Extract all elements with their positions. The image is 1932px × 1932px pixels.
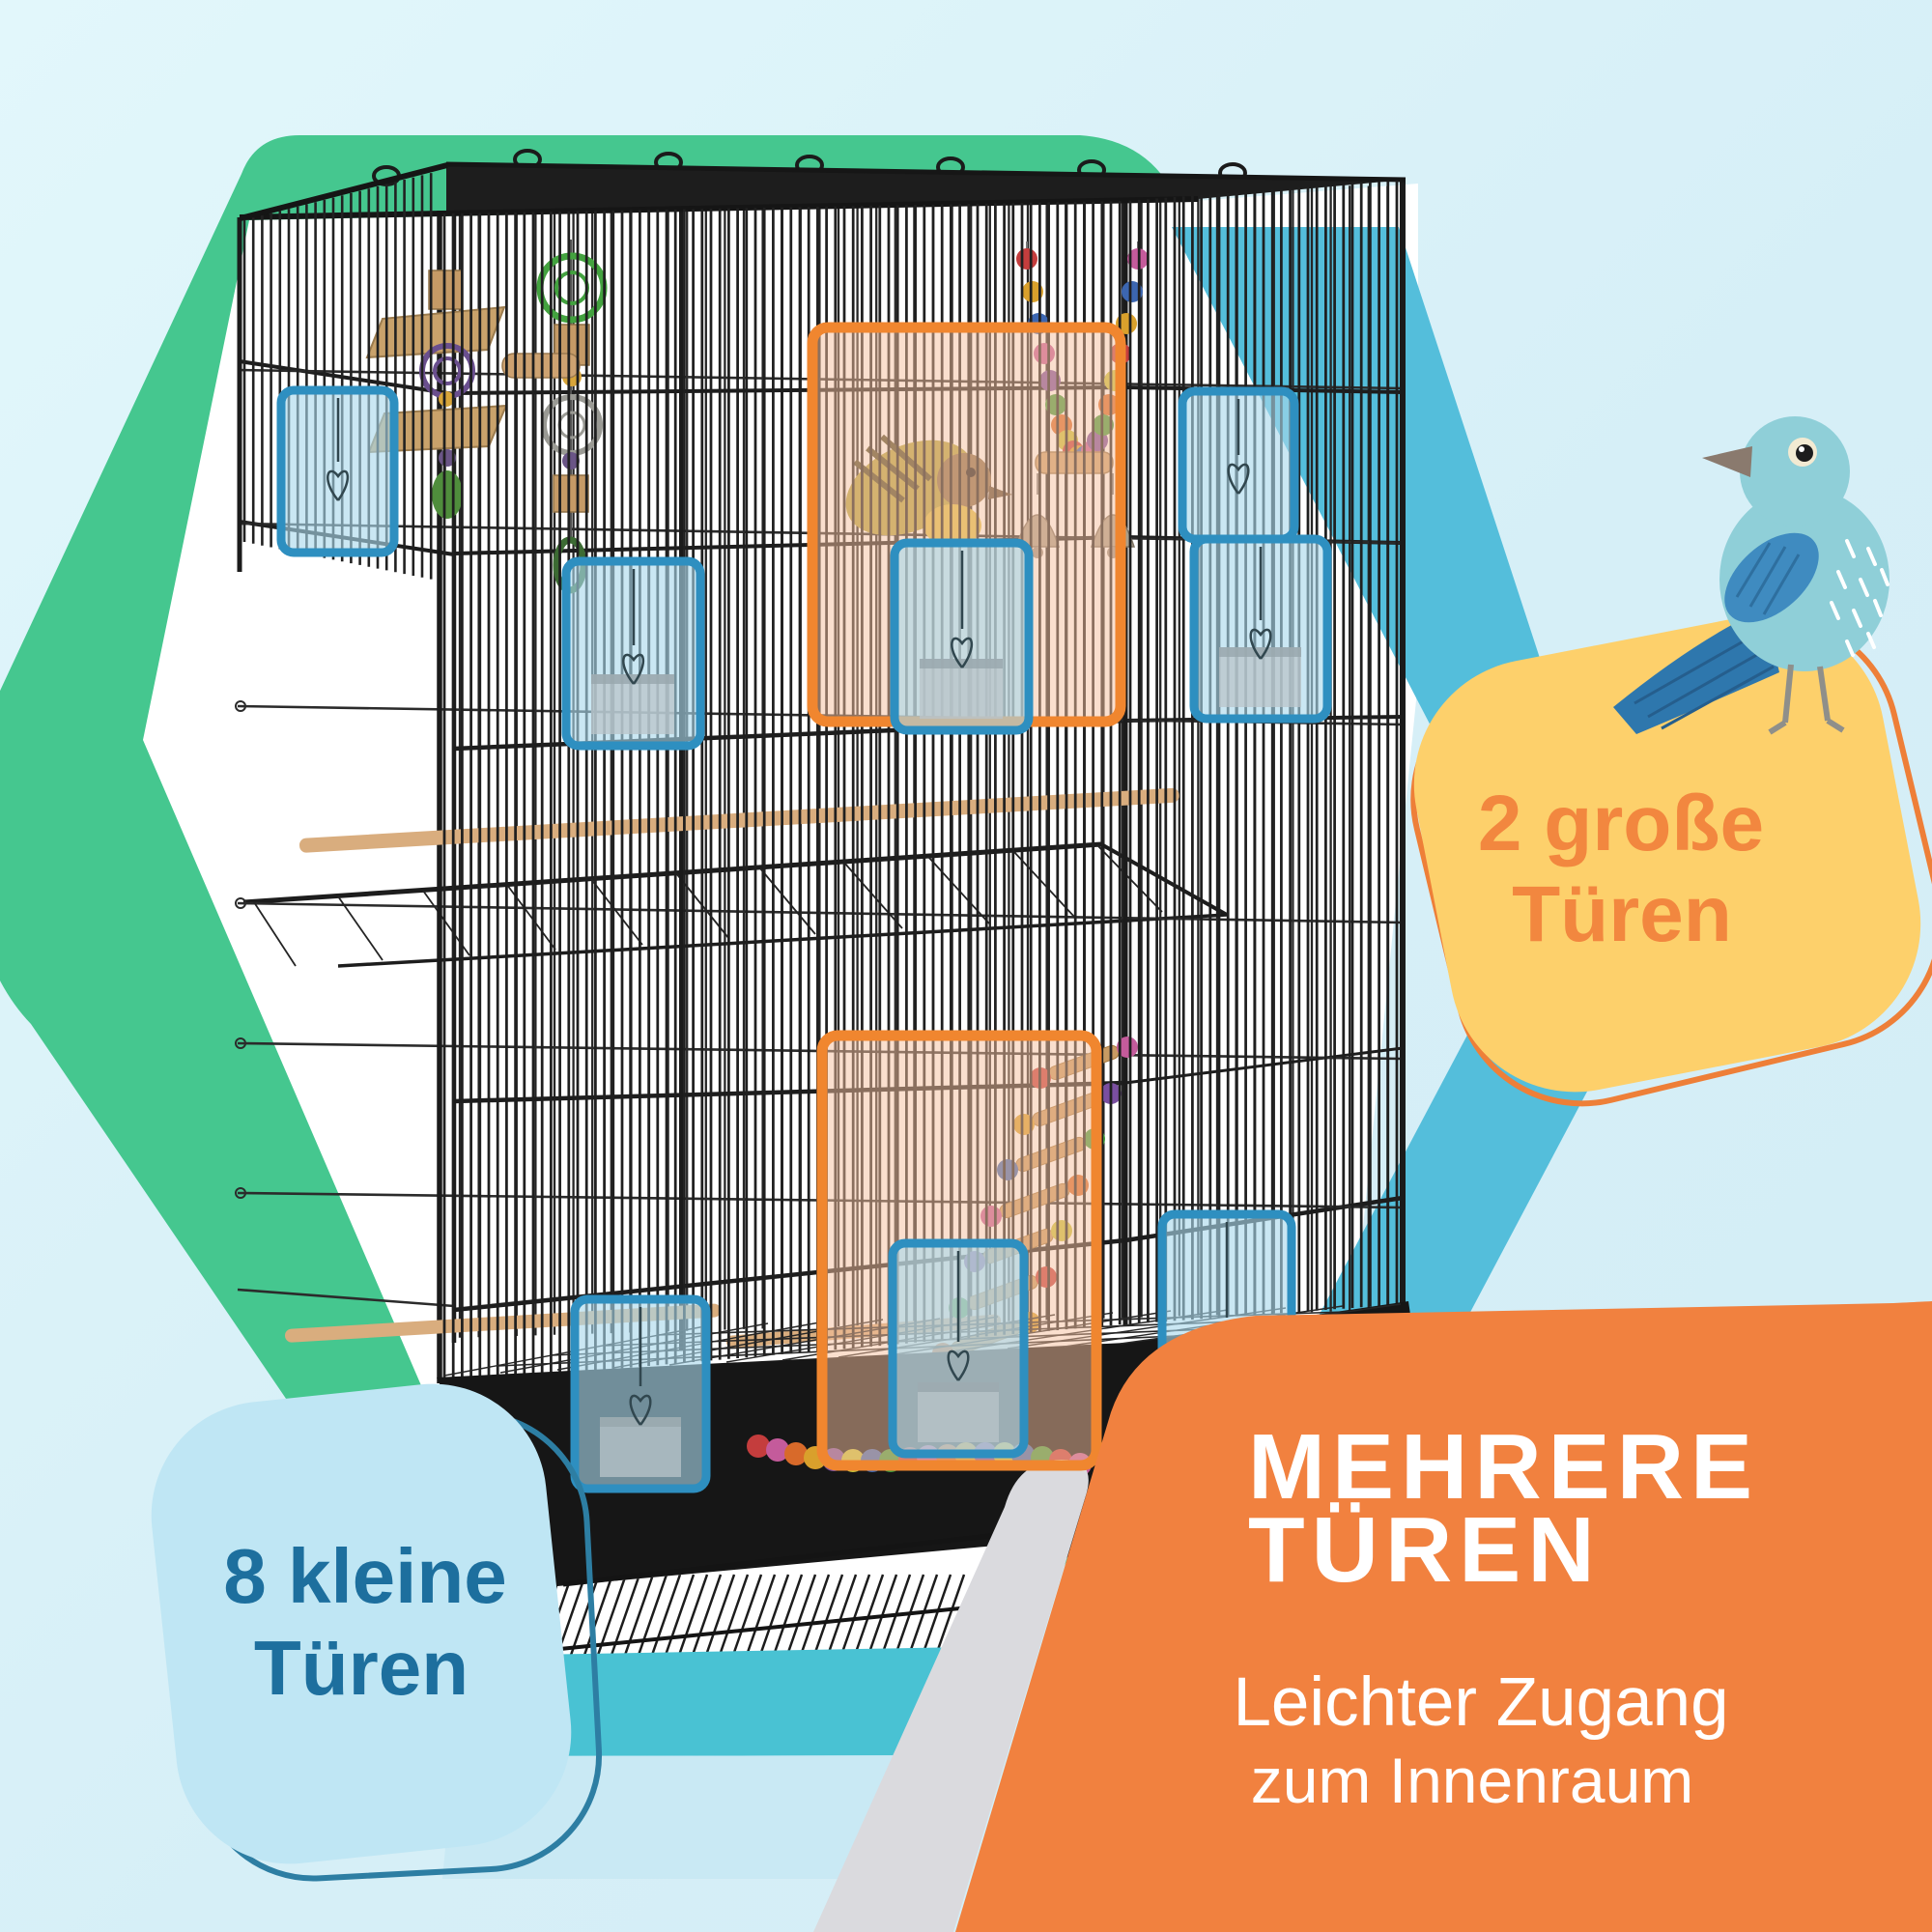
- svg-text:TÜREN: TÜREN: [1248, 1498, 1602, 1602]
- svg-text:Türen: Türen: [254, 1625, 469, 1711]
- svg-text:Leichter Zugang: Leichter Zugang: [1233, 1664, 1728, 1741]
- svg-text:zum Innenraum: zum Innenraum: [1251, 1745, 1694, 1816]
- svg-text:Türen: Türen: [1512, 870, 1732, 958]
- svg-text:2 große: 2 große: [1478, 780, 1764, 867]
- svg-text:8 kleine: 8 kleine: [223, 1533, 507, 1619]
